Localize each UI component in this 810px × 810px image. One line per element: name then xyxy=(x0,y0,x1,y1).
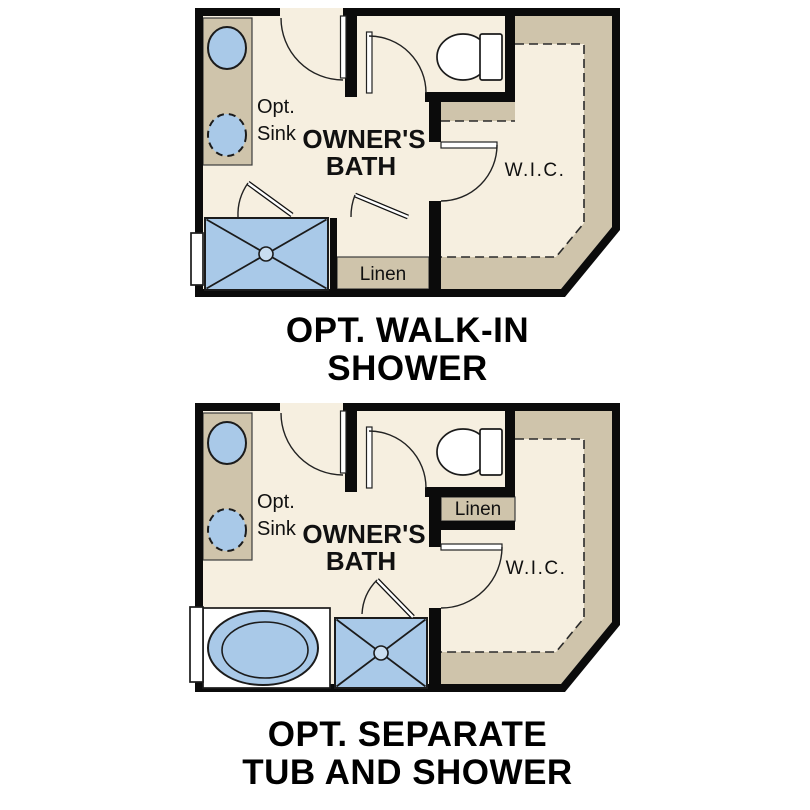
wic-label: W.I.C. xyxy=(505,160,566,181)
wall-stub xyxy=(345,16,357,97)
walk-in-shower xyxy=(205,218,328,290)
floor-plan-walk-in-shower: Opt. Sink OWNER'S BATH W.I.C. Linen OPT.… xyxy=(187,8,628,388)
bathtub xyxy=(203,608,330,688)
entry-door-opening xyxy=(280,403,343,411)
entry-door-leaf xyxy=(341,16,347,78)
separate-tub-shower-plan-drawing: Opt. Sink OWNER'S BATH W.I.C. Linen xyxy=(187,403,628,694)
wic-label: W.I.C. xyxy=(506,558,567,579)
toilet-room-bottom-wall xyxy=(425,487,515,497)
sink xyxy=(208,27,246,69)
wic-divider-wall-lower xyxy=(429,608,441,692)
wic-divider-wall-upper xyxy=(429,102,441,142)
floor-plan-sheet: Opt. Sink OWNER'S BATH W.I.C. Linen OPT.… xyxy=(0,0,810,810)
owners-bath-label-line2: BATH xyxy=(326,546,396,576)
wic-divider-wall-lower xyxy=(429,201,441,289)
walk-in-shower-plan-drawing: Opt. Sink OWNER'S BATH W.I.C. Linen xyxy=(187,8,628,299)
toilet xyxy=(437,429,502,475)
opt-sink-label-line2: Sink xyxy=(257,123,297,145)
linen-left-wall xyxy=(330,218,337,289)
plan-title-walk-in-shower: OPT. WALK-IN SHOWER xyxy=(187,312,628,388)
wall-stub xyxy=(345,411,357,492)
toilet-tank xyxy=(480,429,502,475)
floor-plan-separate-tub-and-shower: Opt. Sink OWNER'S BATH W.I.C. Linen OPT.… xyxy=(187,403,628,792)
shower xyxy=(335,618,427,688)
entry-door-opening xyxy=(280,8,343,16)
toilet-room-bottom-wall xyxy=(425,92,515,102)
plan-title-line2: SHOWER xyxy=(187,350,628,388)
owners-bath-label-line2: BATH xyxy=(326,151,396,181)
toilet xyxy=(437,34,502,80)
optional-sink xyxy=(208,509,246,551)
owners-bath-label-line1: OWNER'S xyxy=(302,124,425,154)
opt-sink-label-line1: Opt. xyxy=(257,96,295,118)
plan-title-line2: TUB AND SHOWER xyxy=(187,754,628,792)
window xyxy=(191,233,203,285)
toilet-room-right-wall xyxy=(505,16,515,102)
plan-title-separate-tub-and-shower: OPT. SEPARATE TUB AND SHOWER xyxy=(187,716,628,792)
opt-sink-label-line2: Sink xyxy=(257,518,297,540)
toilet-tank xyxy=(480,34,502,80)
shower-drain xyxy=(374,646,388,660)
opt-sink-label-line1: Opt. xyxy=(257,491,295,513)
linen-label: Linen xyxy=(455,499,502,520)
owners-bath-label-line1: OWNER'S xyxy=(302,519,425,549)
wic-door-leaf xyxy=(441,142,497,148)
shower-drain xyxy=(259,247,273,261)
linen-bottom-wall xyxy=(429,521,515,530)
entry-door-leaf xyxy=(341,411,347,473)
optional-sink xyxy=(208,114,246,156)
plan-title-line1: OPT. SEPARATE xyxy=(187,716,628,754)
toilet-door-leaf xyxy=(367,32,373,93)
window xyxy=(190,607,203,682)
wic-door-leaf xyxy=(441,544,502,550)
linen-left-wall xyxy=(429,497,441,521)
sink xyxy=(208,422,246,464)
toilet-door-leaf xyxy=(367,427,373,488)
wic-divider-wall-upper xyxy=(429,530,441,547)
plan-title-line1: OPT. WALK-IN xyxy=(187,312,628,350)
toilet-room-right-wall xyxy=(505,411,515,497)
linen-label: Linen xyxy=(360,264,407,285)
